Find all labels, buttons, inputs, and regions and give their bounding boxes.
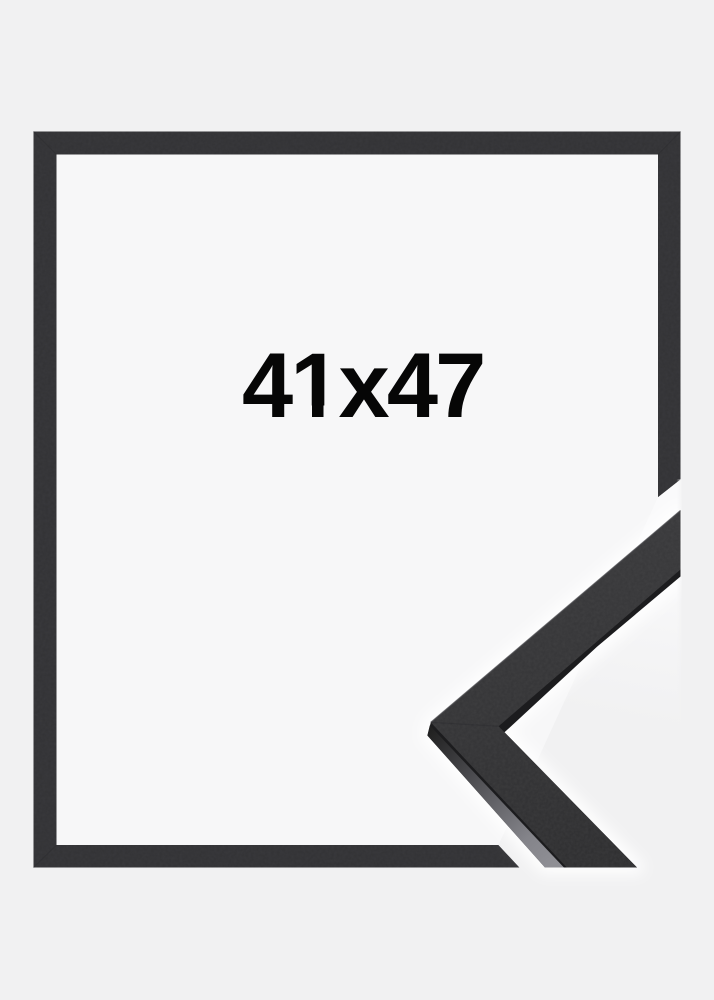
svg-text:41x47: 41x47 bbox=[242, 335, 483, 437]
